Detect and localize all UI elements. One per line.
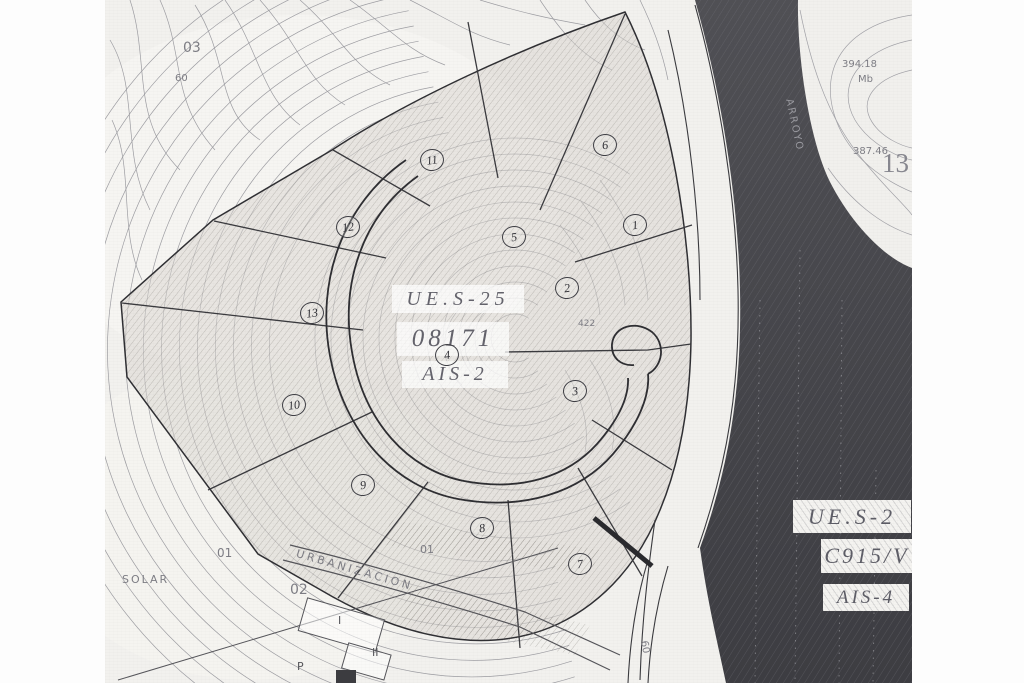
elevation-mb: Mb [858,75,873,85]
map-photo: UE.S-25 08171 AIS-2 UE.S-2 C915/V AIS-4 … [105,0,912,683]
spot-height-422: 422 [578,320,595,329]
zone-02: 02 [290,583,308,597]
building-I: I [338,615,341,626]
ais-plate: AIS-2 [402,361,508,388]
building-II: II [372,647,379,658]
right-unit-code-text: UE.S-2 [808,504,896,530]
zone-01-right: 01 [420,544,434,555]
building-P: P [297,661,304,672]
height-60-top: 60 [175,74,188,84]
right-unit-code-plate: UE.S-2 [793,500,911,533]
sheet-number: 13 [882,150,909,177]
unit-code-plate: UE.S-25 [392,285,524,313]
zone-01-left: 01 [217,547,232,559]
unit-code-text: UE.S-25 [406,288,509,311]
elevation-39418: 394.18 [842,60,877,70]
solar-label-left: SOLAR [122,574,169,585]
zone-03: 03 [183,41,201,55]
right-ais-text: AIS-4 [837,587,895,609]
right-ref-text: C915/V [824,543,909,569]
screenshot: UE.S-25 08171 AIS-2 UE.S-2 C915/V AIS-4 … [0,0,1024,683]
right-ais-plate: AIS-4 [823,584,909,611]
ais-text: AIS-2 [422,363,488,386]
right-ref-plate: C915/V [821,539,912,573]
road-60-label: 60 [638,640,650,654]
solar-label-top: SOLAR [200,0,239,3]
